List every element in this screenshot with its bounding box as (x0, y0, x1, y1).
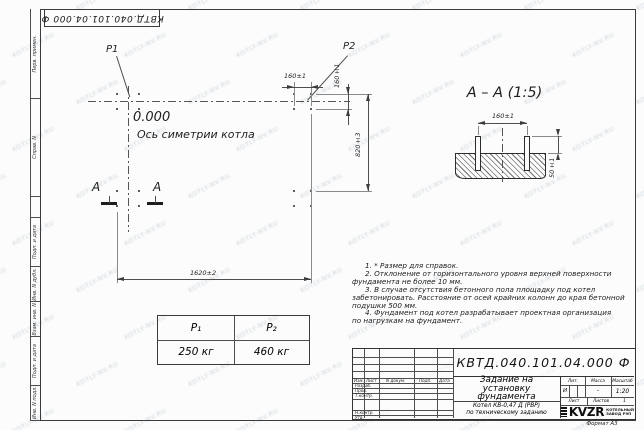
bolt-dot (293, 190, 295, 192)
section-cut-tick (155, 196, 156, 203)
bolt-dot (116, 205, 118, 207)
scale-label: Масштаб (611, 377, 634, 385)
subtitle-line: Котел КВ-0,47 Д (РВР) (473, 403, 540, 410)
watermark-text: KOTLY-NV.RU (0, 266, 8, 295)
table-value-p1: 250 кг (158, 340, 234, 364)
title-block-line (353, 388, 453, 389)
margin-box-sprav: Справ. N (30, 99, 40, 197)
doc-number-text: КВТД.040.101.04.000 Ф (457, 355, 631, 370)
title-block-line (353, 357, 453, 358)
format-label: Формат А3 (572, 422, 632, 428)
margin-label: Перв. примен. (33, 35, 38, 73)
sheets-value: 1 (615, 397, 634, 405)
extension-line (548, 153, 562, 154)
table-value-p2: 460 кг (234, 340, 309, 364)
notes-block: 1. * Размер для справок. 2. Отклонение о… (352, 262, 642, 325)
extension-line (311, 114, 312, 283)
bolt-dot (138, 93, 140, 95)
elevation-mark: 0.000 (133, 111, 170, 124)
title-block-line (353, 415, 453, 416)
extension-line (478, 126, 479, 135)
extension-line (117, 212, 118, 283)
subtitle-line: по техническому заданию (466, 410, 547, 417)
section-cut-tick (109, 196, 110, 203)
extension-line (316, 191, 372, 192)
top-stamp-doc-number: КВТД.040.101.04.000 Ф (41, 13, 164, 23)
title-block-line (353, 371, 453, 372)
row-tkontr-label: Т.контр. (355, 394, 373, 398)
kvzr-logo-icon (561, 407, 567, 417)
title-block: КВТД.040.101.04.000 Ф Задание на установ… (352, 348, 636, 420)
section-view-title: А – А (1:5) (452, 86, 557, 101)
watermark-text: KOTLY-NV.RU (635, 360, 644, 389)
title-block-title: Задание на установку фундамента (453, 377, 561, 402)
top-stamp-box: КВТД.040.101.04.000 Ф (44, 9, 160, 27)
margin-box-podp-data-1: Подп. и дата (30, 218, 40, 267)
col-ndoc-label: N докум. (386, 379, 405, 383)
dimension-line (368, 94, 369, 191)
drawing-sheet: KOTLY-NV.RUKOTLY-NV.RUKOTLY-NV.RUKOTLY-N… (0, 0, 644, 430)
margin-label: Взам. инв. N (33, 303, 38, 336)
extension-line (316, 109, 352, 110)
dimension-text-1620: 1620±2 (190, 270, 216, 277)
extension-line (527, 126, 528, 135)
mass-value: – (585, 385, 611, 397)
watermark-text: KOTLY-NV.RU (0, 360, 8, 389)
row-utv-label: Утв. (355, 416, 364, 420)
watermark-text: KOTLY-NV.RU (0, 78, 8, 107)
bolt-dot (293, 205, 295, 207)
col-podp-label: Подп. (419, 379, 432, 383)
loads-table: P₁ P₂ 250 кг 460 кг (157, 315, 310, 365)
margin-box-empty (30, 197, 40, 218)
watermark-text: KOTLY-NV.RU (635, 172, 644, 201)
extension-line (294, 82, 295, 106)
dimension-text-160-top: 160±1 (278, 73, 312, 80)
scale-value: 1:20 (611, 385, 634, 397)
margin-label: Подп. и дата (33, 344, 38, 378)
bolt-dot (293, 108, 295, 110)
title-block-line (353, 399, 453, 400)
title-block-line (353, 364, 453, 365)
bolt-dot (310, 108, 312, 110)
margin-label: Справ. N (33, 136, 38, 159)
foundation-block-hatched (455, 153, 546, 179)
dimension-text-50: 50±1 (549, 156, 556, 180)
title-block-subtitle: Котел КВ-0,47 Д (РВР) по техническому за… (453, 402, 561, 418)
title-block-line (569, 385, 570, 397)
title-block-doc-number: КВТД.040.101.04.000 Ф (453, 349, 634, 377)
bolt-dot (116, 93, 118, 95)
bolt-dot (116, 108, 118, 110)
margin-box-inv-podl: Инв. N подл. (30, 386, 40, 421)
kvzr-logo-text: KVZR (569, 405, 604, 419)
watermark-text: KOTLY-NV.RU (635, 0, 644, 12)
bolt-dot (138, 205, 140, 207)
col-data-label: Дата (439, 379, 450, 383)
vertical-centerline (128, 86, 129, 232)
load-point-p2-label: P2 (343, 42, 355, 52)
watermark-text: KOTLY-NV.RU (0, 172, 8, 201)
watermark-text: KOTLY-NV.RU (635, 78, 644, 107)
anchor-bolt (475, 136, 481, 171)
title-line: фундамента (477, 393, 535, 401)
load-point-p1-label: P1 (106, 45, 118, 55)
table-header-p2: P₂ (234, 316, 309, 340)
company-logo-cell: KVZR КОТЕЛЬНЫЙ ЗАВОД РЭП (561, 405, 634, 418)
axis-of-symmetry-label: Ось симетрии котла (137, 129, 255, 140)
lit-value: И (561, 385, 569, 397)
margin-label: Инв. N дубл. (33, 268, 38, 301)
extension-line (311, 82, 312, 106)
dimension-text-160-section: 160±1 (486, 113, 520, 120)
margin-box-vzam-inv: Взам. инв. N (30, 302, 40, 337)
note-line: по нагрузкам на фундамент. (352, 317, 642, 325)
logo-caption-line2: ЗАВОД РЭП (606, 412, 634, 416)
bolt-dot (138, 190, 140, 192)
section-letter-right: А (153, 181, 161, 193)
margin-box-inv-dubl: Инв. N дубл. (30, 267, 40, 302)
lit-label: Лит. (561, 377, 585, 385)
mass-label: Масса (585, 377, 611, 385)
bolt-dot (116, 190, 118, 192)
title-block-line (577, 385, 578, 397)
dimension-text-160-side: 160±1 (334, 60, 341, 92)
table-header-p1: P₁ (158, 316, 234, 340)
section-centerline (502, 128, 503, 182)
watermark-text: KOTLY-NV.RU (0, 0, 8, 12)
margin-label: Инв. N подл. (33, 386, 38, 419)
anchor-bolt (524, 136, 530, 171)
margin-label: Подп. и дата (33, 225, 38, 259)
margin-box-perv-primen: Перв. примен. (30, 9, 40, 99)
extension-line (316, 94, 372, 95)
dimension-line (558, 136, 559, 153)
section-letter-left: А (92, 181, 100, 193)
dimension-text-820: 820±3 (355, 128, 362, 162)
margin-box-podp-data-2: Подп. и дата (30, 337, 40, 386)
dimension-line (117, 279, 311, 280)
dimension-line (478, 123, 527, 124)
